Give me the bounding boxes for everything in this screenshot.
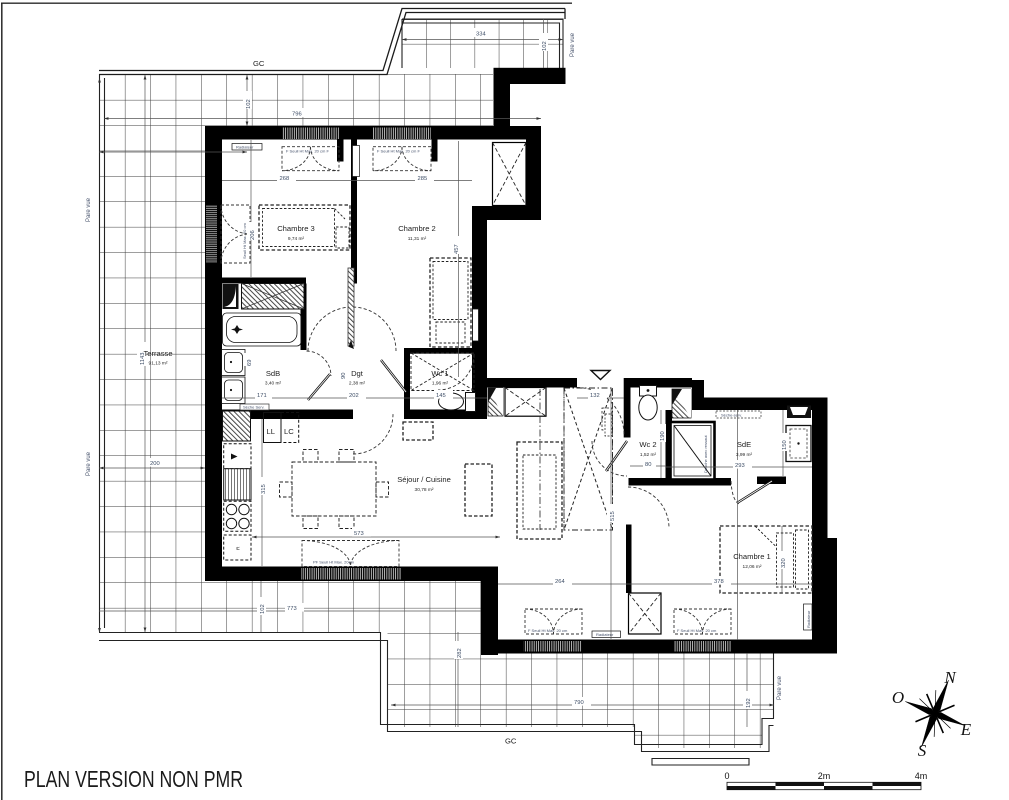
svg-text:102: 102 bbox=[542, 41, 548, 51]
svg-text:145: 145 bbox=[436, 393, 446, 399]
svg-text:378: 378 bbox=[714, 579, 724, 585]
svg-text:Sèche-serv.: Sèche-serv. bbox=[721, 413, 742, 418]
svg-text:Wc 2: Wc 2 bbox=[639, 440, 656, 449]
svg-text:206: 206 bbox=[250, 230, 256, 240]
svg-text:SdE: SdE bbox=[737, 440, 751, 449]
svg-text:12,06 m²: 12,06 m² bbox=[743, 564, 762, 570]
svg-text:202: 202 bbox=[349, 393, 359, 399]
svg-text:Pare vue: Pare vue bbox=[86, 451, 92, 476]
svg-text:796: 796 bbox=[292, 112, 302, 118]
svg-text:9,74 m²: 9,74 m² bbox=[288, 236, 305, 242]
svg-text:LC: LC bbox=[284, 427, 294, 436]
svg-text:E: E bbox=[960, 720, 972, 739]
svg-text:4m: 4m bbox=[915, 771, 928, 781]
svg-text:Seuil Ht Max. 20 cm: Seuil Ht Max. 20 cm bbox=[242, 223, 247, 259]
svg-text:R: R bbox=[236, 546, 242, 550]
svg-text:O: O bbox=[892, 688, 904, 707]
svg-text:SdB: SdB bbox=[266, 369, 280, 378]
svg-text:1,52 m²: 1,52 m² bbox=[640, 452, 657, 458]
svg-text:790: 790 bbox=[574, 700, 584, 706]
svg-text:91,13 m²: 91,13 m² bbox=[149, 361, 168, 367]
svg-text:PF Seuil Ht Max. 20cm: PF Seuil Ht Max. 20cm bbox=[313, 560, 355, 565]
svg-text:3,99 m²: 3,99 m² bbox=[736, 452, 753, 458]
svg-text:Sèche Serv.: Sèche Serv. bbox=[243, 405, 265, 410]
svg-text:102: 102 bbox=[260, 604, 266, 614]
svg-text:773: 773 bbox=[287, 606, 297, 612]
svg-text:Dgt: Dgt bbox=[351, 369, 364, 378]
svg-text:PLAN VERSION NON PMR: PLAN VERSION NON PMR bbox=[24, 766, 243, 792]
svg-text:102: 102 bbox=[246, 99, 252, 109]
svg-text:293: 293 bbox=[735, 463, 745, 469]
svg-text:F Seuil Ht Max. 20 cm F: F Seuil Ht Max. 20 cm F bbox=[286, 149, 329, 154]
svg-text:F Seuil Ht Max. 20 cm: F Seuil Ht Max. 20 cm bbox=[528, 628, 568, 633]
svg-text:F Seuil Ht Max. 20 cm F: F Seuil Ht Max. 20 cm F bbox=[377, 149, 420, 154]
svg-text:Pare vue: Pare vue bbox=[86, 197, 92, 222]
svg-text:200: 200 bbox=[150, 461, 160, 467]
svg-text:1,96 m²: 1,96 m² bbox=[432, 381, 449, 387]
svg-text:457: 457 bbox=[454, 244, 460, 254]
svg-text:80: 80 bbox=[645, 462, 651, 468]
svg-text:Pare vue: Pare vue bbox=[570, 32, 576, 57]
svg-text:GC: GC bbox=[253, 59, 265, 68]
svg-text:Pare vue: Pare vue bbox=[777, 675, 783, 700]
svg-text:Chambre 2: Chambre 2 bbox=[398, 224, 436, 233]
svg-text:320: 320 bbox=[781, 558, 787, 568]
svg-text:268: 268 bbox=[280, 176, 290, 182]
svg-text:F Seuil Ht Max. 20 cm: F Seuil Ht Max. 20 cm bbox=[677, 628, 717, 633]
svg-text:Séjour / Cuisine: Séjour / Cuisine bbox=[397, 475, 451, 484]
svg-text:515: 515 bbox=[610, 511, 616, 521]
svg-text:Chambre 3: Chambre 3 bbox=[277, 224, 315, 233]
svg-text:90: 90 bbox=[341, 373, 347, 379]
svg-text:573: 573 bbox=[354, 531, 364, 537]
svg-text:Wc 1: Wc 1 bbox=[431, 369, 448, 378]
svg-text:132: 132 bbox=[590, 393, 600, 399]
svg-text:Chambre 1: Chambre 1 bbox=[733, 552, 771, 561]
svg-text:190: 190 bbox=[660, 431, 666, 441]
svg-text:2m: 2m bbox=[818, 771, 831, 781]
svg-text:N: N bbox=[943, 668, 957, 687]
svg-text:69: 69 bbox=[247, 360, 253, 366]
svg-text:150: 150 bbox=[782, 440, 788, 450]
svg-text:334: 334 bbox=[476, 32, 486, 38]
svg-text:30,78 m²: 30,78 m² bbox=[415, 487, 434, 493]
svg-text:285: 285 bbox=[418, 176, 428, 182]
svg-text:GC: GC bbox=[505, 737, 517, 746]
svg-text:Terrasse: Terrasse bbox=[143, 349, 172, 358]
svg-text:11,31 m²: 11,31 m² bbox=[408, 236, 427, 242]
svg-text:2,38 m²: 2,38 m² bbox=[349, 381, 366, 387]
svg-text:3,40 m²: 3,40 m² bbox=[265, 381, 282, 387]
svg-text:S: S bbox=[918, 741, 927, 760]
svg-text:0: 0 bbox=[724, 771, 729, 781]
svg-text:Radiateur: Radiateur bbox=[806, 610, 811, 628]
svg-text:171: 171 bbox=[257, 393, 267, 399]
svg-text:264: 264 bbox=[555, 579, 565, 585]
svg-text:315: 315 bbox=[261, 484, 267, 494]
svg-text:LL: LL bbox=[267, 427, 275, 436]
svg-text:192: 192 bbox=[746, 698, 752, 708]
svg-text:282: 282 bbox=[457, 648, 463, 658]
